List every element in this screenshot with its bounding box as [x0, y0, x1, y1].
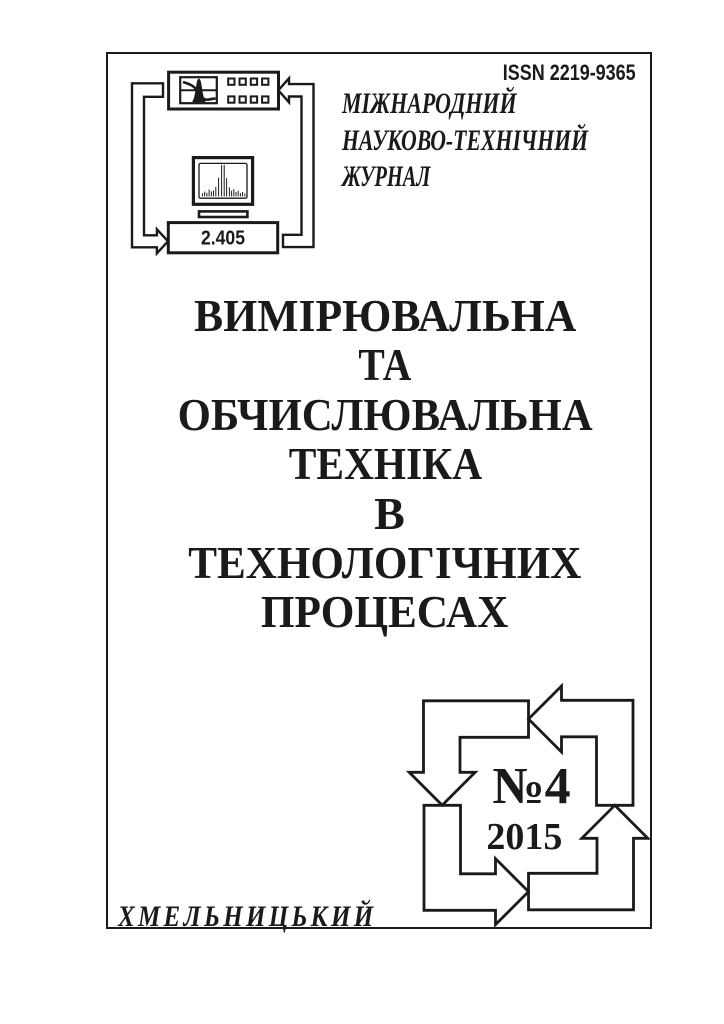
svg-text:2.405: 2.405	[201, 227, 245, 250]
